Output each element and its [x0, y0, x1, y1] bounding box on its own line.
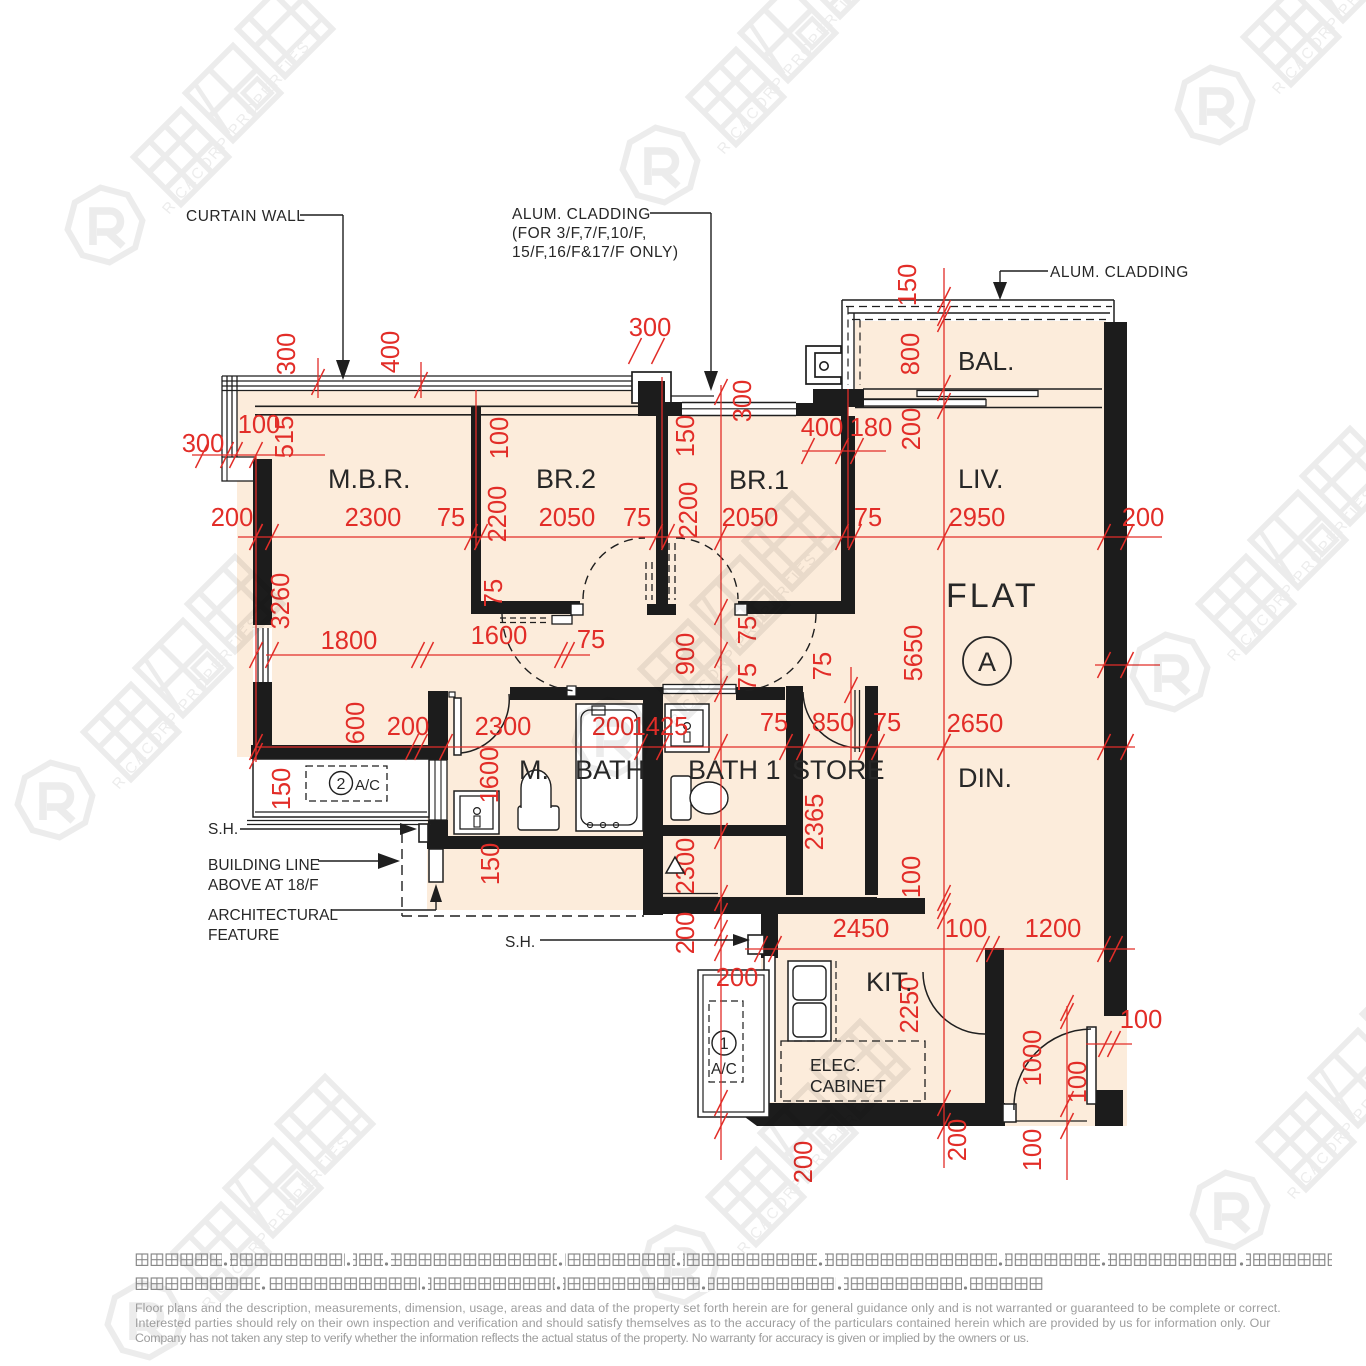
svg-text:S.H.: S.H. — [505, 934, 535, 951]
svg-text:1600: 1600 — [476, 747, 504, 804]
svg-text:850: 850 — [812, 709, 855, 737]
svg-text:A/C: A/C — [711, 1061, 737, 1078]
svg-text:15/F,16/F&17/F ONLY): 15/F,16/F&17/F ONLY) — [512, 244, 679, 261]
svg-text:2050: 2050 — [539, 504, 596, 532]
svg-text:75: 75 — [873, 709, 901, 737]
svg-text:M.B.R.: M.B.R. — [328, 464, 411, 494]
svg-text:2450: 2450 — [833, 915, 890, 943]
svg-text:200: 200 — [716, 964, 759, 992]
svg-text:100: 100 — [1120, 1006, 1163, 1034]
svg-text:BAL.: BAL. — [958, 346, 1014, 376]
svg-text:Company has not taken any step: Company has not taken any step to verify… — [135, 1331, 1029, 1345]
svg-text:200: 200 — [672, 912, 700, 955]
svg-text:2950: 2950 — [949, 504, 1006, 532]
svg-text:800: 800 — [897, 333, 925, 376]
svg-text:1200: 1200 — [1025, 915, 1082, 943]
svg-text:600: 600 — [342, 702, 370, 745]
svg-text:75: 75 — [854, 504, 882, 532]
svg-text:75: 75 — [623, 504, 651, 532]
svg-text:150: 150 — [477, 843, 505, 886]
svg-text:300: 300 — [629, 314, 672, 342]
svg-text:LIV.: LIV. — [958, 464, 1004, 494]
svg-text:75: 75 — [734, 663, 762, 691]
svg-text:1600: 1600 — [471, 622, 528, 650]
svg-text:200: 200 — [1122, 504, 1165, 532]
svg-text:300: 300 — [729, 380, 757, 423]
svg-text:300: 300 — [273, 333, 301, 376]
svg-text:5650: 5650 — [900, 625, 928, 682]
svg-text:75: 75 — [577, 626, 605, 654]
svg-text:515: 515 — [271, 416, 299, 459]
svg-text:DIN.: DIN. — [958, 763, 1012, 793]
svg-text:100: 100 — [1019, 1129, 1047, 1172]
svg-text:S.H.: S.H. — [208, 821, 238, 838]
svg-text:ALUM. CLADDING: ALUM. CLADDING — [512, 206, 651, 223]
svg-text:A/C: A/C — [355, 777, 380, 794]
svg-text:200: 200 — [944, 1119, 972, 1162]
svg-text:100: 100 — [1064, 1061, 1092, 1104]
svg-text:1000: 1000 — [1019, 1030, 1047, 1087]
svg-text:150: 150 — [672, 415, 700, 458]
svg-text:2300: 2300 — [345, 504, 402, 532]
svg-text:BUILDING LINE: BUILDING LINE — [208, 857, 320, 874]
svg-text:2: 2 — [337, 776, 346, 793]
svg-text:FEATURE: FEATURE — [208, 927, 279, 944]
svg-text:M.: M. — [519, 755, 549, 785]
svg-text:FLAT: FLAT — [946, 577, 1039, 615]
svg-text:180: 180 — [850, 414, 893, 442]
svg-text:ALUM. CLADDING: ALUM. CLADDING — [1050, 264, 1189, 281]
svg-text:100: 100 — [898, 856, 926, 899]
svg-text:100: 100 — [945, 915, 988, 943]
svg-text:2200: 2200 — [675, 482, 703, 539]
svg-text:ABOVE AT 18/F: ABOVE AT 18/F — [208, 877, 319, 894]
svg-text:1800: 1800 — [321, 627, 378, 655]
svg-text:200: 200 — [898, 408, 926, 451]
svg-text:2200: 2200 — [484, 486, 512, 543]
svg-text:200: 200 — [211, 504, 254, 532]
svg-text:75: 75 — [437, 504, 465, 532]
svg-text:ARCHITECTURAL: ARCHITECTURAL — [208, 907, 338, 924]
svg-text:Interested parties should rely: Interested parties should rely on their … — [135, 1316, 1271, 1330]
svg-text:200: 200 — [387, 713, 430, 741]
svg-text:400: 400 — [377, 331, 405, 374]
svg-text:300: 300 — [182, 430, 225, 458]
svg-text:400: 400 — [801, 414, 844, 442]
svg-text:BR.2: BR.2 — [536, 464, 596, 494]
svg-text:BR.1: BR.1 — [729, 465, 789, 495]
svg-text:2300: 2300 — [475, 713, 532, 741]
svg-text:2365: 2365 — [801, 794, 829, 851]
svg-text:75: 75 — [809, 652, 837, 680]
svg-text:(FOR 3/F,7/F,10/F,: (FOR 3/F,7/F,10/F, — [512, 225, 647, 242]
svg-text:STORE: STORE — [792, 755, 885, 785]
svg-text:100: 100 — [486, 417, 514, 460]
svg-text:CURTAIN WALL: CURTAIN WALL — [186, 208, 305, 225]
svg-text:BATH 1: BATH 1 — [688, 755, 781, 785]
svg-text:75: 75 — [760, 709, 788, 737]
svg-text:150: 150 — [268, 768, 296, 811]
svg-text:A: A — [978, 647, 996, 677]
svg-text:150: 150 — [894, 264, 922, 307]
svg-text:2650: 2650 — [947, 710, 1004, 738]
svg-text:KIT.: KIT. — [866, 967, 913, 997]
svg-text:Floor plans and the descriptio: Floor plans and the description, measure… — [135, 1301, 1281, 1315]
svg-text:75: 75 — [480, 579, 508, 607]
